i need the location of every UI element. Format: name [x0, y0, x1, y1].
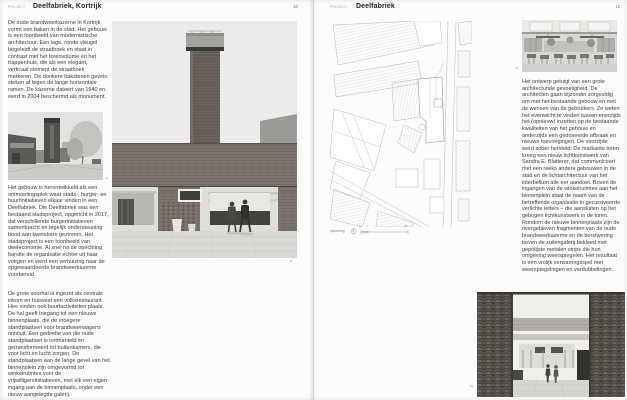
site-plan-drawing: [330, 21, 472, 227]
scale-tick: 5: [366, 224, 368, 228]
street-photo-image: [8, 112, 103, 180]
north-arrow-icon: [350, 228, 357, 235]
figure-number: 02: [289, 259, 292, 263]
gate-photo: [477, 292, 625, 397]
courtyard-photo: [112, 21, 297, 258]
gate-photo-image: [477, 292, 625, 397]
courtyard-photo-image: [112, 21, 297, 258]
restaurant-photo: [522, 20, 617, 72]
page-title: Deelfabriek, Kortrijk: [33, 3, 102, 10]
body-paragraph: De grote voorhal is ingezet als centrale…: [8, 291, 112, 397]
page-number: 11: [602, 4, 620, 9]
scale-tick: 25: [404, 224, 407, 228]
figure-number: 04: [470, 384, 473, 388]
page-title: Deelfabriek: [356, 3, 395, 10]
book-spread: PROJECT Deelfabriek, Kortrijk 10 De oude…: [0, 0, 627, 400]
section-label: PROJECT: [330, 5, 347, 9]
figure-number: 03: [515, 66, 518, 70]
street-photo: [8, 112, 103, 180]
right-page: PROJECT Deelfabriek 11: [314, 0, 627, 400]
body-paragraph: Het ontwerp getuigt van een grote archit…: [522, 79, 621, 289]
site-plan-caption: inplanting: [330, 229, 345, 233]
restaurant-photo-image: [522, 20, 617, 72]
body-paragraph: Het gebouw is herontwikkeld als een ontm…: [8, 185, 112, 287]
figure-number: 01: [105, 176, 108, 180]
scale-tick: 0: [359, 224, 361, 228]
site-plan-image: [330, 21, 472, 227]
body-paragraph: De oude brandweerkazerne in Kortrijk vor…: [8, 20, 108, 110]
scale-bar: [360, 228, 410, 235]
left-page: PROJECT Deelfabriek, Kortrijk 10 De oude…: [0, 0, 313, 400]
section-label: PROJECT: [8, 5, 25, 9]
page-number: 10: [280, 4, 298, 9]
